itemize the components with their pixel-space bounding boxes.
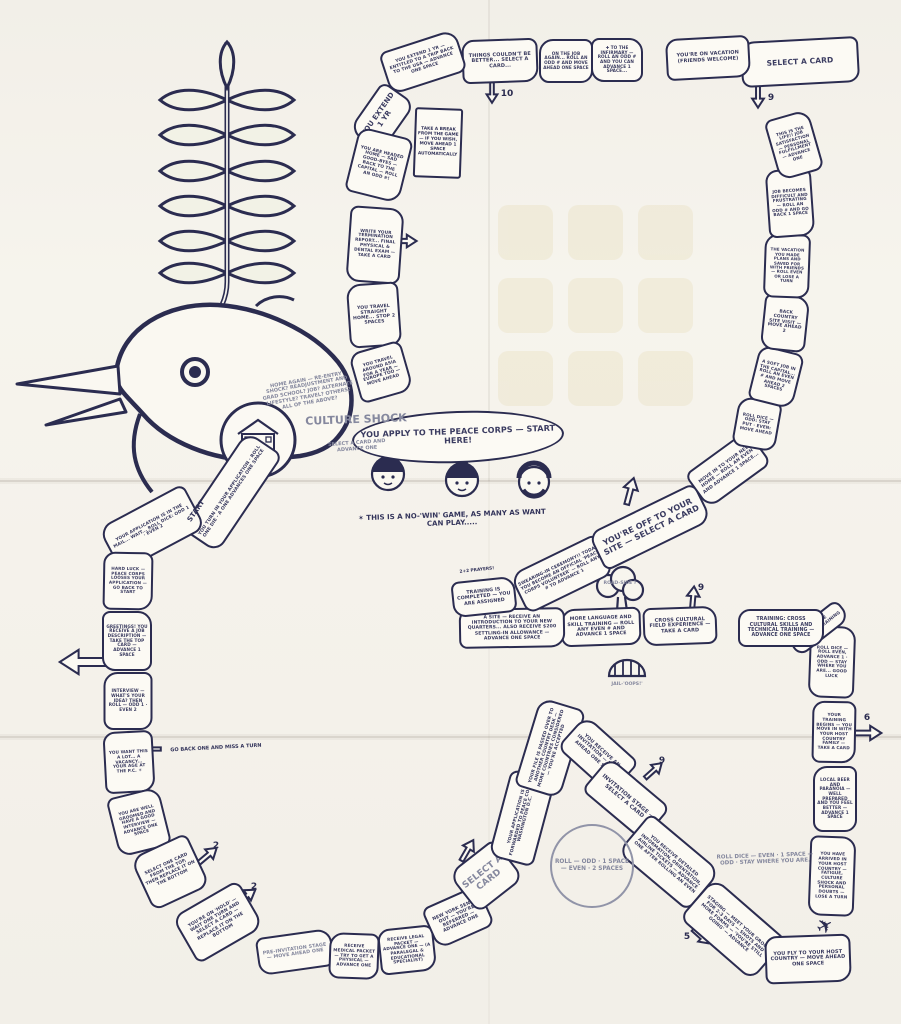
space-greetings-job-description: GREETINGS! YOU RECEIVE A JOB DESCRIPTION… [102,611,152,671]
space-travel-straight-home: YOU TRAVEL STRAIGHT HOME... STOP 2 SPACE… [346,281,402,348]
space-training-completed: TRAINING IS COMPLETED — YOU ARE ASSIGNED [450,576,517,618]
space-field-experience: CROSS CULTURAL FIELD EXPERIENCE — TAKE A… [642,606,717,647]
go-back-note: GO BACK ONE AND MISS A TURN [162,737,271,761]
board-game-scan: HOME [0,0,901,1024]
roll-circle: ROLL — ODD · 1 SPACE — EVEN · 2 SPACES [550,824,634,908]
game-path: YOU APPLY TO THE PEACE CORPS — START HER… [0,0,901,1024]
home-again-note: HOME AGAIN — RE-ENTRY SHOCK? READJUSTMEN… [251,329,365,456]
space-on-the-job-again: ON THE JOB AGAIN... ROLL AN ODD # AND MO… [539,39,593,83]
space-on-vacation: YOU'RE ON VACATION (FRIENDS WELCOME) [665,35,751,81]
space-headed-home: YOU ARE HEADED HOME — SAD GOOD-BYES — BA… [344,126,414,204]
space-turn-in-application: YOU TURN IN YOUR APPLICATION · ROLL ONE … [181,431,283,553]
roll-dice-note: ROLL DICE — EVEN · 1 SPACE — ODD · STAY … [712,840,818,878]
space-travel-around: YOU TRAVEL AROUND ASIA FOR A YEAR — EURO… [348,340,414,405]
space-pre-invitation-stage: PRE-INVITATION STAGE — MOVE AHEAD ONE [255,928,336,976]
space-interview: INTERVIEW — WHAT'S YOUR IDEA? THEN ROLL … [104,672,153,730]
no-win-note: ✶ THIS IS A NO-'WIN' GAME, AS MANY AS WA… [356,496,547,543]
take-a-break-card: TAKE A BREAK FROM THE GAME — IF YOU WISH… [413,107,463,179]
space-select-a-card-top: SELECT A CARD [740,36,860,88]
space-infirmary: ✚ TO THE INFIRMARY — ROLL AN ODD # AND Y… [591,38,643,82]
space-vacation-plans: THE VACATION YOU MADE PLANS AND SAVED FO… [763,233,811,299]
space-off-to-your-site: YOU'RE OFF TO YOUR SITE — SELECT A CARD [588,482,712,571]
space-hard-luck: HARD LUCK — PEACE CORPS LOOSES YOUR APPL… [102,552,153,611]
space-back-country-visit: BACK COUNTRY SITE VISIT — MOVE AHEAD 2 [760,293,811,353]
space-local-beer: LOCAL BEER AND PARANOIA — WELL PREPARED … [813,766,857,832]
space-fly-to-host-country: YOU FLY TO YOUR HOST COUNTRY — MOVE AHEA… [764,934,852,985]
space-extend-trip-usa: YOU EXTEND 1 YR — ENTITLED TO A TRIP BAC… [378,29,468,96]
space-legal-packet: RECEIVE LEGAL PACKET — ADVANCE ONE — (A … [377,924,438,976]
space-termination-report: WRITE YOUR TERMINATION REPORT... FINAL P… [345,205,404,285]
space-soft-job-capital: A SOFT JOB IN THE CAPITAL... ROLL AN EVE… [747,344,805,409]
space-vacancy: YOU WANT THIS A LOT... A VACANCY... YOUR… [102,730,155,795]
space-host-family: YOUR TRAINING BEGINS — YOU MOVE IN WITH … [811,701,856,764]
space-medical-packet: RECEIVE MEDICAL PACKET — TRY TO GET A PH… [328,932,380,980]
space-cross-cultural-training: TRAINING: CROSS CULTURAL SKILLS AND TECH… [738,609,824,647]
space-things-couldnt-be-better: THINGS COULDN'T BE BETTER... SELECT A CA… [461,38,538,85]
space-more-language: MORE LANGUAGE AND SKILL TRAINING — ROLL … [560,607,641,648]
